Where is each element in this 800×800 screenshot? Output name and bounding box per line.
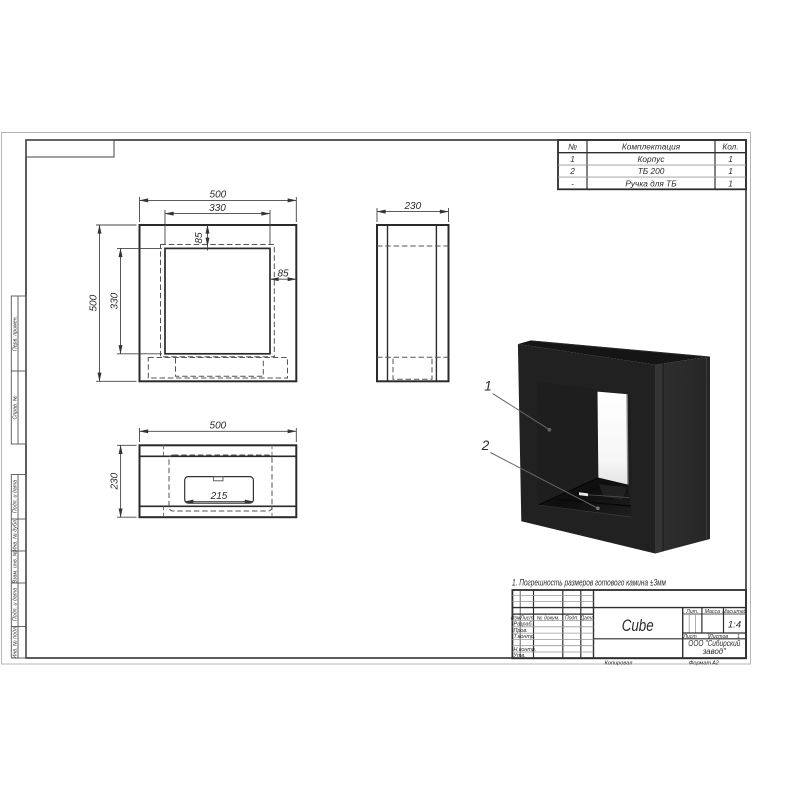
svg-text:1: 1 xyxy=(728,154,733,164)
svg-text:Перв. примен.: Перв. примен. xyxy=(13,316,19,351)
svg-text:Комплектация: Комплектация xyxy=(622,142,681,152)
svg-text:500: 500 xyxy=(210,421,227,432)
svg-text:Корпус: Корпус xyxy=(638,154,666,164)
svg-text:Дата: Дата xyxy=(579,615,594,621)
svg-text:-: - xyxy=(571,178,574,188)
svg-text:Т.контр.: Т.контр. xyxy=(514,634,536,640)
svg-text:85: 85 xyxy=(194,232,205,244)
svg-text:завод": завод" xyxy=(702,647,727,656)
svg-text:1: 1 xyxy=(570,154,575,164)
svg-text:500: 500 xyxy=(89,294,100,311)
svg-text:2: 2 xyxy=(481,438,490,453)
svg-text:Подп. и дата: Подп. и дата xyxy=(13,480,19,513)
svg-text:1: 1 xyxy=(728,166,733,176)
svg-text:Пров.: Пров. xyxy=(514,628,528,634)
svg-text:85: 85 xyxy=(277,269,289,280)
svg-text:2: 2 xyxy=(569,166,575,176)
svg-text:№: № xyxy=(568,142,577,152)
svg-text:Взам. инв. №: Взам. инв. № xyxy=(13,550,19,583)
svg-text:ТБ 200: ТБ 200 xyxy=(638,166,665,176)
svg-text:Масштаб: Масштаб xyxy=(722,609,747,615)
svg-text:Лит.: Лит. xyxy=(685,609,698,615)
svg-text:1:4: 1:4 xyxy=(728,620,741,631)
svg-text:Копировал: Копировал xyxy=(605,661,634,667)
svg-text:Справ. №: Справ. № xyxy=(13,395,19,419)
svg-text:215: 215 xyxy=(210,491,228,502)
svg-text:Инв. № дубл.: Инв. № дубл. xyxy=(13,519,19,552)
svg-text:330: 330 xyxy=(209,203,226,214)
svg-text:Ручка для ТБ: Ручка для ТБ xyxy=(625,178,677,188)
svg-text:1: 1 xyxy=(484,379,492,394)
svg-text:Инв. № подл.: Инв. № подл. xyxy=(13,626,19,659)
svg-text:Формат: Формат xyxy=(689,661,712,667)
svg-text:1: 1 xyxy=(728,178,733,188)
svg-text:Масса: Масса xyxy=(705,609,720,615)
svg-text:330: 330 xyxy=(109,292,120,309)
svg-text:№ докум.: № докум. xyxy=(537,615,560,621)
svg-text:Подп.: Подп. xyxy=(565,615,579,621)
svg-text:Утв.: Утв. xyxy=(513,653,526,659)
svg-text:Кол.: Кол. xyxy=(722,142,738,152)
svg-text:А2: А2 xyxy=(711,661,720,667)
svg-text:Разраб.: Разраб. xyxy=(514,622,534,628)
svg-text:230: 230 xyxy=(403,201,421,212)
svg-text:Подп. и дата: Подп. и дата xyxy=(13,588,19,621)
svg-text:500: 500 xyxy=(210,190,227,201)
svg-text:Cube: Cube xyxy=(622,616,654,635)
svg-text:230: 230 xyxy=(110,472,121,490)
svg-text:Лист: Лист xyxy=(519,615,534,621)
svg-text:1. Погрешность размеров готово: 1. Погрешность размеров готового камина … xyxy=(512,578,666,588)
